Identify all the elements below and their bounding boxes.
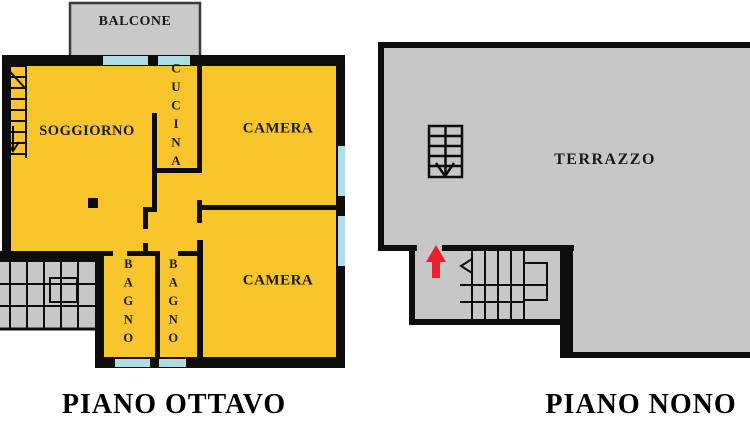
room-label-bagno-2: BAGNO xyxy=(167,257,180,350)
floorplan-canvas: BALCONE SOGGIORNO CUCINA CAMERA CAMERA B… xyxy=(0,0,750,425)
room-label-camera-nord: CAMERA xyxy=(243,122,314,137)
room-label-soggiorno: SOGGIORNO xyxy=(39,124,135,139)
piano-ottavo-drawing xyxy=(0,0,375,425)
plan-title-piano-ottavo: PIANO OTTAVO xyxy=(62,389,286,421)
stairwell-floor xyxy=(0,260,95,329)
room-label-balcone: BALCONE xyxy=(99,15,172,29)
room-label-camera-sud: CAMERA xyxy=(243,274,314,289)
piano-nono-drawing xyxy=(375,0,750,425)
room-label-bagno-1: BAGNO xyxy=(122,257,135,350)
pillar xyxy=(88,198,98,208)
room-label-terrazzo: TERRAZZO xyxy=(554,152,656,168)
balcony-area xyxy=(70,3,200,57)
room-label-cucina: CUCINA xyxy=(170,61,183,172)
plan-title-piano-nono: PIANO NONO xyxy=(545,389,736,421)
